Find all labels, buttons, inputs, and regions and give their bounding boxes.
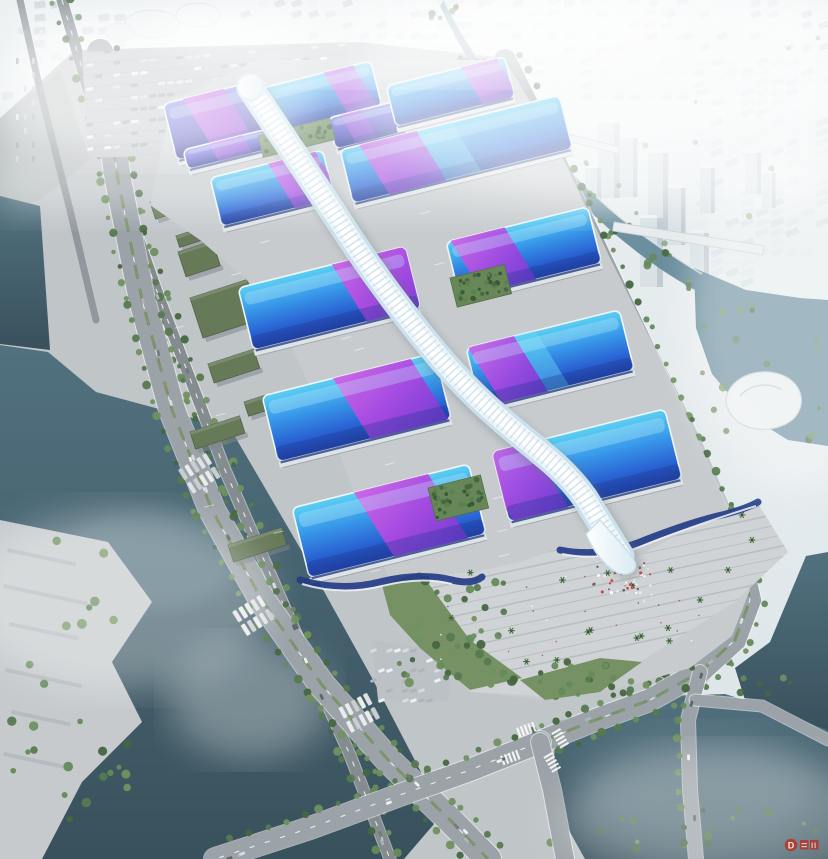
watermark: D: [785, 839, 819, 851]
rendering-svg: D: [0, 0, 828, 859]
watermark-letter: D: [788, 841, 795, 851]
aerial-rendering-canvas: D: [0, 0, 828, 859]
atmospheric-haze-overlay: [0, 0, 828, 859]
